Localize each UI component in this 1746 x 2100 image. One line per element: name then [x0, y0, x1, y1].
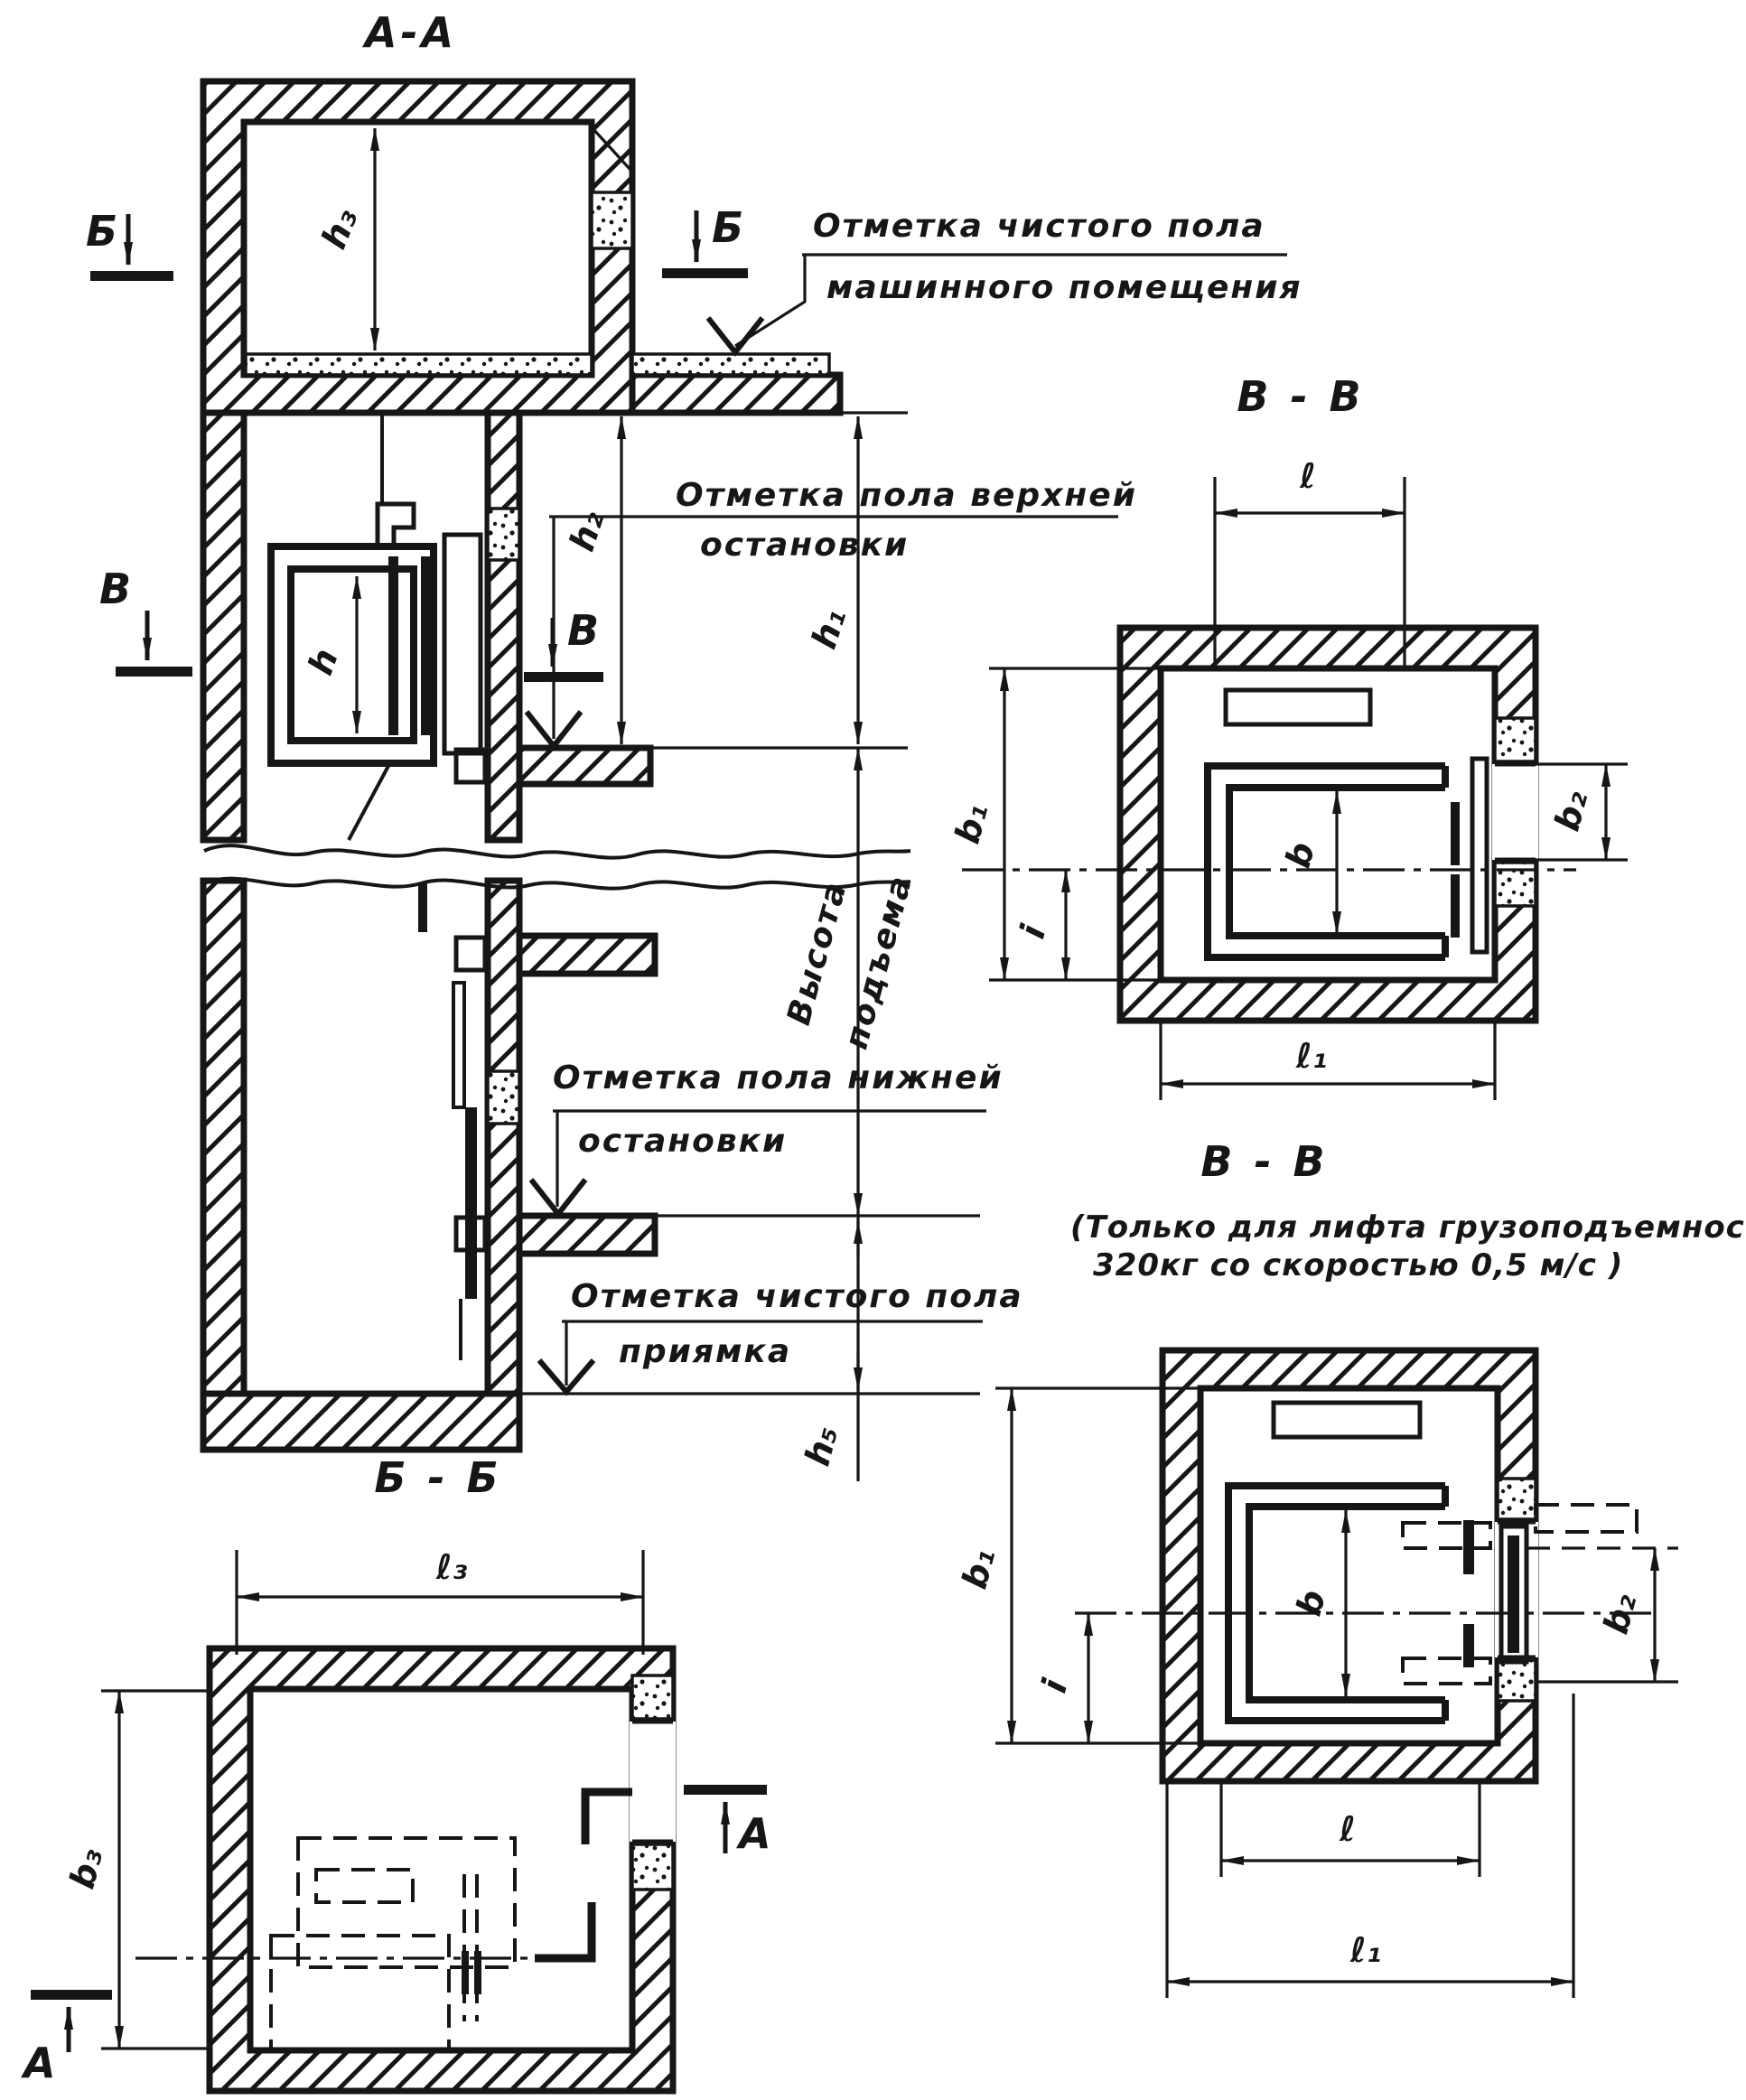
intermediate-floor-slab: [519, 936, 655, 974]
shaft-left-wall-upper: [203, 413, 244, 840]
pit-floor-text2: приямка: [619, 1333, 791, 1370]
marker-b-left-bar: [90, 271, 173, 281]
vvt-insulation-top: [1495, 718, 1536, 761]
upper-stop-text1: Отметка пола верхней: [676, 477, 1137, 514]
dim-vvb-b1: b₁: [955, 1545, 1004, 1593]
cab-crosshead: [378, 504, 414, 546]
section-bb-title: Б - Б: [374, 1453, 501, 1502]
marker-v-right-label: В: [567, 606, 599, 655]
marker-b-left-label: Б: [86, 207, 117, 256]
dim-vvb-l1: ℓ₁: [1349, 1930, 1382, 1970]
shaft-right-wall-upper: [488, 413, 519, 840]
vvt-door-bar-2: [1451, 874, 1460, 938]
screed-strip: [246, 354, 592, 375]
dim-h: h: [300, 643, 346, 679]
door-leaf-upper: [444, 535, 481, 753]
upper-stop-floor-slab: [519, 748, 650, 784]
machine-floor-slab-extension: [632, 375, 840, 413]
lower-stop-floor-slab: [519, 1216, 655, 1254]
dim-vvt-b2: b₂: [1547, 786, 1596, 835]
marker-a-bottom-bar: [31, 1990, 112, 2000]
insulation-block-upper: [488, 509, 519, 560]
marker-b-right-label: Б: [712, 203, 743, 252]
marker-v-right-bar: [524, 672, 603, 682]
guide-rail: [388, 556, 398, 735]
section-marker-a-bottom: А: [21, 1990, 112, 2087]
dim-vvt-l: ℓ: [1299, 456, 1316, 496]
section-marker-b-left: Б: [86, 207, 173, 281]
machine-room: [203, 81, 840, 413]
pit-floor-slab: [203, 1394, 519, 1450]
break-line-top: [204, 845, 910, 858]
marker-v-left-bar: [116, 667, 192, 677]
shaft-left-wall-lower: [203, 881, 244, 1394]
sheave-bar-1: [462, 1951, 469, 1994]
section-marker-v-right: В: [524, 606, 603, 682]
cab-outer-frame: [271, 546, 434, 763]
section-aa-title: А-А: [362, 8, 457, 57]
bb-door-opening: [630, 1722, 676, 1842]
marker-a-right-label: А: [736, 1809, 771, 1858]
bb-insulation-bottom: [632, 1844, 673, 1890]
vvt-door-bar-1: [1451, 802, 1460, 865]
dim-vvt-i: i: [1013, 920, 1054, 943]
screed-strip-extension: [632, 354, 829, 375]
lift-height-word1: Высота: [780, 877, 854, 1029]
marker-a-bottom-label: А: [21, 2039, 56, 2087]
machine-room-interior: [244, 122, 592, 375]
marker-v-left-label: В: [99, 565, 131, 613]
sheave-bar-2: [474, 1951, 481, 1994]
pit-floor-text1: Отметка чистого пола: [571, 1278, 1023, 1315]
elevator-cab: h: [271, 413, 481, 840]
shaft-right-wall-lower: [488, 881, 519, 1394]
dim-l3: ℓ₃: [435, 1547, 468, 1587]
annotation-pit-floor: Отметка чистого пола приямка: [539, 1278, 1023, 1392]
dim-h1: h₁: [804, 603, 854, 653]
annotation-lower-stop: Отметка пола нижней остановки: [531, 1059, 1004, 1214]
vvb-insulation-top: [1498, 1479, 1536, 1519]
marker-b-right-bar: [662, 268, 748, 278]
section-bb-plan: Б - Б ℓ₃ b₃: [21, 1453, 771, 2091]
upper-stop-text2: остановки: [700, 527, 909, 564]
dim-b3: b₃: [62, 1843, 111, 1892]
vv-note-line1: (Только для лифта грузоподъемностью: [1070, 1209, 1746, 1246]
vvb-interior: [1200, 1388, 1498, 1743]
drawing-sheet: А-А h₃ Б Б: [0, 0, 1746, 2100]
dim-vvb-b2: b₂: [1596, 1589, 1645, 1638]
machine-floor-text2: машинного помещения: [826, 269, 1302, 306]
lifting-height-dimension: Высота подъема h₅: [780, 748, 920, 1481]
door-panel-lower: [465, 1107, 477, 1299]
door-panel-upper: [421, 556, 431, 735]
lower-stop-text2: остановки: [578, 1123, 787, 1160]
break-line-bottom: [204, 879, 910, 889]
vvt-door-opening: [1492, 764, 1538, 860]
vvb-door-bar-2: [1463, 1624, 1474, 1667]
lower-stop-text1: Отметка пола нижней: [553, 1059, 1004, 1097]
dim-vvb-l: ℓ: [1339, 1809, 1356, 1849]
vv-note-line2: 320кг со скоростью 0,5 м/с ): [1093, 1247, 1623, 1283]
door-frame-lower: [453, 983, 464, 1107]
vvb-door-bar-1: [1463, 1520, 1474, 1574]
section-vv-bottom: В - В (Только для лифта грузоподъемность…: [955, 1137, 1746, 1998]
bb-insulation-top: [632, 1675, 673, 1719]
dim-h2: h₂: [562, 506, 612, 555]
vvb-door-panel: [1508, 1535, 1519, 1653]
bb-interior: [250, 1689, 632, 2050]
machine-floor-text1: Отметка чистого пола: [813, 208, 1265, 245]
section-marker-a-right: А: [684, 1785, 771, 1858]
guide-rail-lower: [418, 882, 427, 932]
insulation-block: [592, 192, 632, 248]
annotation-machine-floor: Отметка чистого пола машинного помещения: [708, 208, 1302, 352]
marker-a-right-bar: [684, 1785, 767, 1795]
dim-vvt-l1: ℓ₁: [1295, 1036, 1328, 1076]
vvb-dashed-projection: [1536, 1505, 1637, 1532]
elevator-shaft-drawing: А-А h₃ Б Б: [0, 0, 1746, 2100]
section-vv-bottom-title: В - В: [1200, 1137, 1328, 1186]
dim-vvt-b1: b₁: [948, 799, 996, 848]
dim-vvb-i: i: [1034, 1675, 1076, 1697]
section-vv-top-title: В - В: [1237, 372, 1364, 421]
section-marker-b-right: Б: [662, 203, 748, 278]
intermediate-sill: [456, 938, 485, 970]
dim-h5: h₅: [798, 1422, 846, 1470]
section-marker-v-left: В: [99, 565, 192, 677]
rope-break-line: [349, 766, 388, 840]
insulation-block-lower: [488, 1071, 519, 1124]
vvb-insulation-bottom: [1498, 1660, 1536, 1701]
